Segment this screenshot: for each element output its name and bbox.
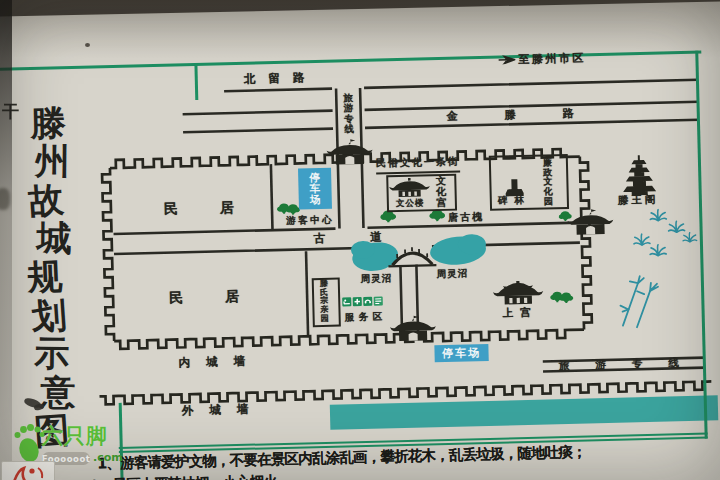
map-sign-surface: 滕州故城规划示意图 停车场 停车场 北留路 至滕州市区 金滕路 旅游专线 民居 … <box>0 0 720 480</box>
arrow-east-icon <box>498 55 515 64</box>
parking-lot-south: 停车场 <box>434 344 488 362</box>
photo-of-map-sign: { "map": { "title": "滕州故城规划示意图", "roads"… <box>0 0 720 480</box>
corner-logo-glyph <box>2 462 54 480</box>
zhouling-pond-east-label: 周灵沼 <box>436 267 468 281</box>
inner-wall-label: 内城墙 <box>179 353 262 370</box>
zhouling-pond-west-label: 周灵沼 <box>361 272 393 286</box>
east-gate-icon <box>567 209 614 235</box>
stele-forest-label: 碑林 <box>498 194 531 208</box>
residence-south-label: 民居 <box>169 287 281 308</box>
adjacent-panel-partial-text: 干 <box>2 100 19 123</box>
bamboo-decoration <box>620 276 659 328</box>
parking-lot-south-label: 停车场 <box>442 345 481 361</box>
tourist-line-top-label: 旅游专线 <box>341 93 356 134</box>
watermark-tld: .com <box>93 451 123 464</box>
wengong-tower-label: 文公楼 <box>396 197 425 210</box>
ancient-road-label: 古道 <box>314 228 427 246</box>
integrity-park-label: 廉政文化园 <box>541 158 555 207</box>
south-gate-icon <box>390 315 437 341</box>
shang-palace-icon <box>493 280 544 304</box>
culture-palace-label: 文化宫 <box>434 176 448 209</box>
beiliu-road-label: 北留路 <box>244 70 318 87</box>
service-area-icons <box>342 296 383 306</box>
shang-palace-label: 上宫 <box>502 306 537 321</box>
pond-right <box>429 234 488 267</box>
sign-title: 滕州故城规划示意图 <box>30 103 88 451</box>
watermark-brand: 六只脚 <box>42 422 108 450</box>
outer-wall-label: 外城墙 <box>182 401 265 418</box>
service-area-label: 服务区 <box>345 310 387 324</box>
folk-culture-street-label: 民俗文化一条街 <box>376 155 460 175</box>
tang-ancient-locust-label: 唐古槐 <box>448 210 484 225</box>
landscape-teal-band <box>330 395 718 429</box>
teng-clan-garden-label: 滕氏宗亲园 <box>314 280 335 324</box>
tengwang-pavilion-label: 滕王阁 <box>618 193 659 208</box>
residence-north-label: 民居 <box>164 198 276 219</box>
to-city-label: 至滕州市区 <box>518 50 586 67</box>
tengwang-pavilion-icon <box>622 155 656 196</box>
corner-logo <box>1 461 55 480</box>
visitor-center-label: 游客中心 <box>286 214 334 228</box>
parking-lot-north: 停车场 <box>298 168 332 210</box>
grass-tuft-icons <box>633 209 697 257</box>
